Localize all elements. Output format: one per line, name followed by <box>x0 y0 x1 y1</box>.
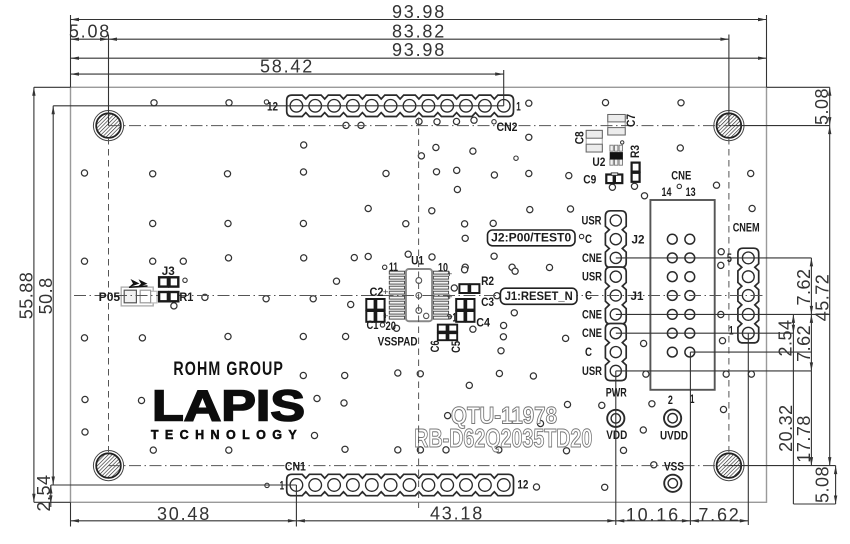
svg-text:J2: J2 <box>632 233 645 247</box>
svg-text:C: C <box>585 345 592 359</box>
svg-text:CNE: CNE <box>582 251 602 265</box>
svg-text:45.72: 45.72 <box>812 274 832 322</box>
svg-text:U2: U2 <box>592 155 605 169</box>
svg-text:VSSPAD: VSSPAD <box>378 335 418 349</box>
svg-text:+: + <box>383 287 389 298</box>
svg-text:93.98: 93.98 <box>392 40 446 60</box>
svg-text:RB-D62Q2035TD20: RB-D62Q2035TD20 <box>414 423 592 453</box>
svg-text:VSS: VSS <box>664 460 684 474</box>
svg-text:1: 1 <box>453 311 457 325</box>
svg-text:C: C <box>585 289 592 303</box>
svg-text:11: 11 <box>389 260 398 274</box>
svg-text:7.62: 7.62 <box>794 268 814 305</box>
svg-text:13: 13 <box>686 185 696 199</box>
svg-text:J3: J3 <box>162 264 175 278</box>
svg-text:ROHM GROUP: ROHM GROUP <box>173 358 284 380</box>
svg-text:C5: C5 <box>449 341 463 353</box>
svg-text:UVDD: UVDD <box>660 428 688 442</box>
svg-text:83.82: 83.82 <box>392 22 446 42</box>
svg-text:C6: C6 <box>428 340 442 352</box>
svg-text:12: 12 <box>267 100 278 114</box>
svg-text:1: 1 <box>729 324 734 338</box>
svg-text:20.32: 20.32 <box>776 404 796 452</box>
svg-text:C9: C9 <box>583 172 596 186</box>
svg-text:55.88: 55.88 <box>17 272 37 320</box>
svg-text:TECHNOLOGY: TECHNOLOGY <box>151 428 303 442</box>
svg-text:C: C <box>585 232 592 246</box>
svg-text:R3: R3 <box>628 145 642 158</box>
svg-text:10.16: 10.16 <box>626 505 680 525</box>
svg-text:2.54: 2.54 <box>776 319 796 356</box>
svg-text:58.42: 58.42 <box>260 56 314 76</box>
svg-text:CNE: CNE <box>671 168 691 182</box>
svg-text:14: 14 <box>662 185 672 199</box>
svg-text:C4: C4 <box>476 316 490 330</box>
svg-text:7.62: 7.62 <box>698 505 740 525</box>
svg-text:+: + <box>447 292 453 303</box>
svg-text:17.78: 17.78 <box>794 415 814 463</box>
svg-text:43.18: 43.18 <box>430 504 484 524</box>
svg-text:2: 2 <box>668 393 673 407</box>
svg-text:P05: P05 <box>99 290 121 304</box>
svg-text:12: 12 <box>517 478 528 492</box>
svg-text:5.08: 5.08 <box>813 466 833 503</box>
svg-text:C3: C3 <box>481 295 494 309</box>
svg-text:C1: C1 <box>367 318 379 332</box>
svg-text:USR: USR <box>582 364 602 378</box>
svg-text:20: 20 <box>386 319 397 333</box>
svg-text:C8: C8 <box>573 131 587 144</box>
svg-text:R2: R2 <box>481 274 494 288</box>
svg-text:U1: U1 <box>411 253 424 267</box>
svg-text:USR: USR <box>582 270 602 284</box>
svg-text:7.62: 7.62 <box>794 325 814 362</box>
svg-text:CNEM: CNEM <box>733 221 760 235</box>
svg-text:R1: R1 <box>179 290 193 304</box>
svg-text:CNE: CNE <box>582 307 602 321</box>
svg-text:J2:P00/TEST0: J2:P00/TEST0 <box>491 233 571 245</box>
svg-text:5.08: 5.08 <box>69 22 111 42</box>
svg-text:2.54: 2.54 <box>34 474 54 511</box>
svg-text:5.08: 5.08 <box>812 88 832 125</box>
svg-text:LAPIS: LAPIS <box>152 381 305 430</box>
svg-text:CN1: CN1 <box>285 460 306 474</box>
svg-text:J1: J1 <box>631 289 644 303</box>
svg-text:10: 10 <box>438 260 448 274</box>
svg-text:CNE: CNE <box>582 326 602 340</box>
svg-text:J1:RESET_N: J1:RESET_N <box>505 291 573 303</box>
svg-text:VDD: VDD <box>606 428 627 442</box>
svg-text:1: 1 <box>280 479 285 493</box>
svg-text:C2: C2 <box>370 285 384 299</box>
svg-text:USR: USR <box>582 214 602 228</box>
svg-text:93.98: 93.98 <box>392 2 446 22</box>
svg-text:50.8: 50.8 <box>36 277 56 314</box>
svg-text:30.48: 30.48 <box>157 504 211 524</box>
svg-text:C7: C7 <box>624 114 638 127</box>
svg-text:CN2: CN2 <box>497 120 518 134</box>
svg-text:1: 1 <box>516 99 521 113</box>
